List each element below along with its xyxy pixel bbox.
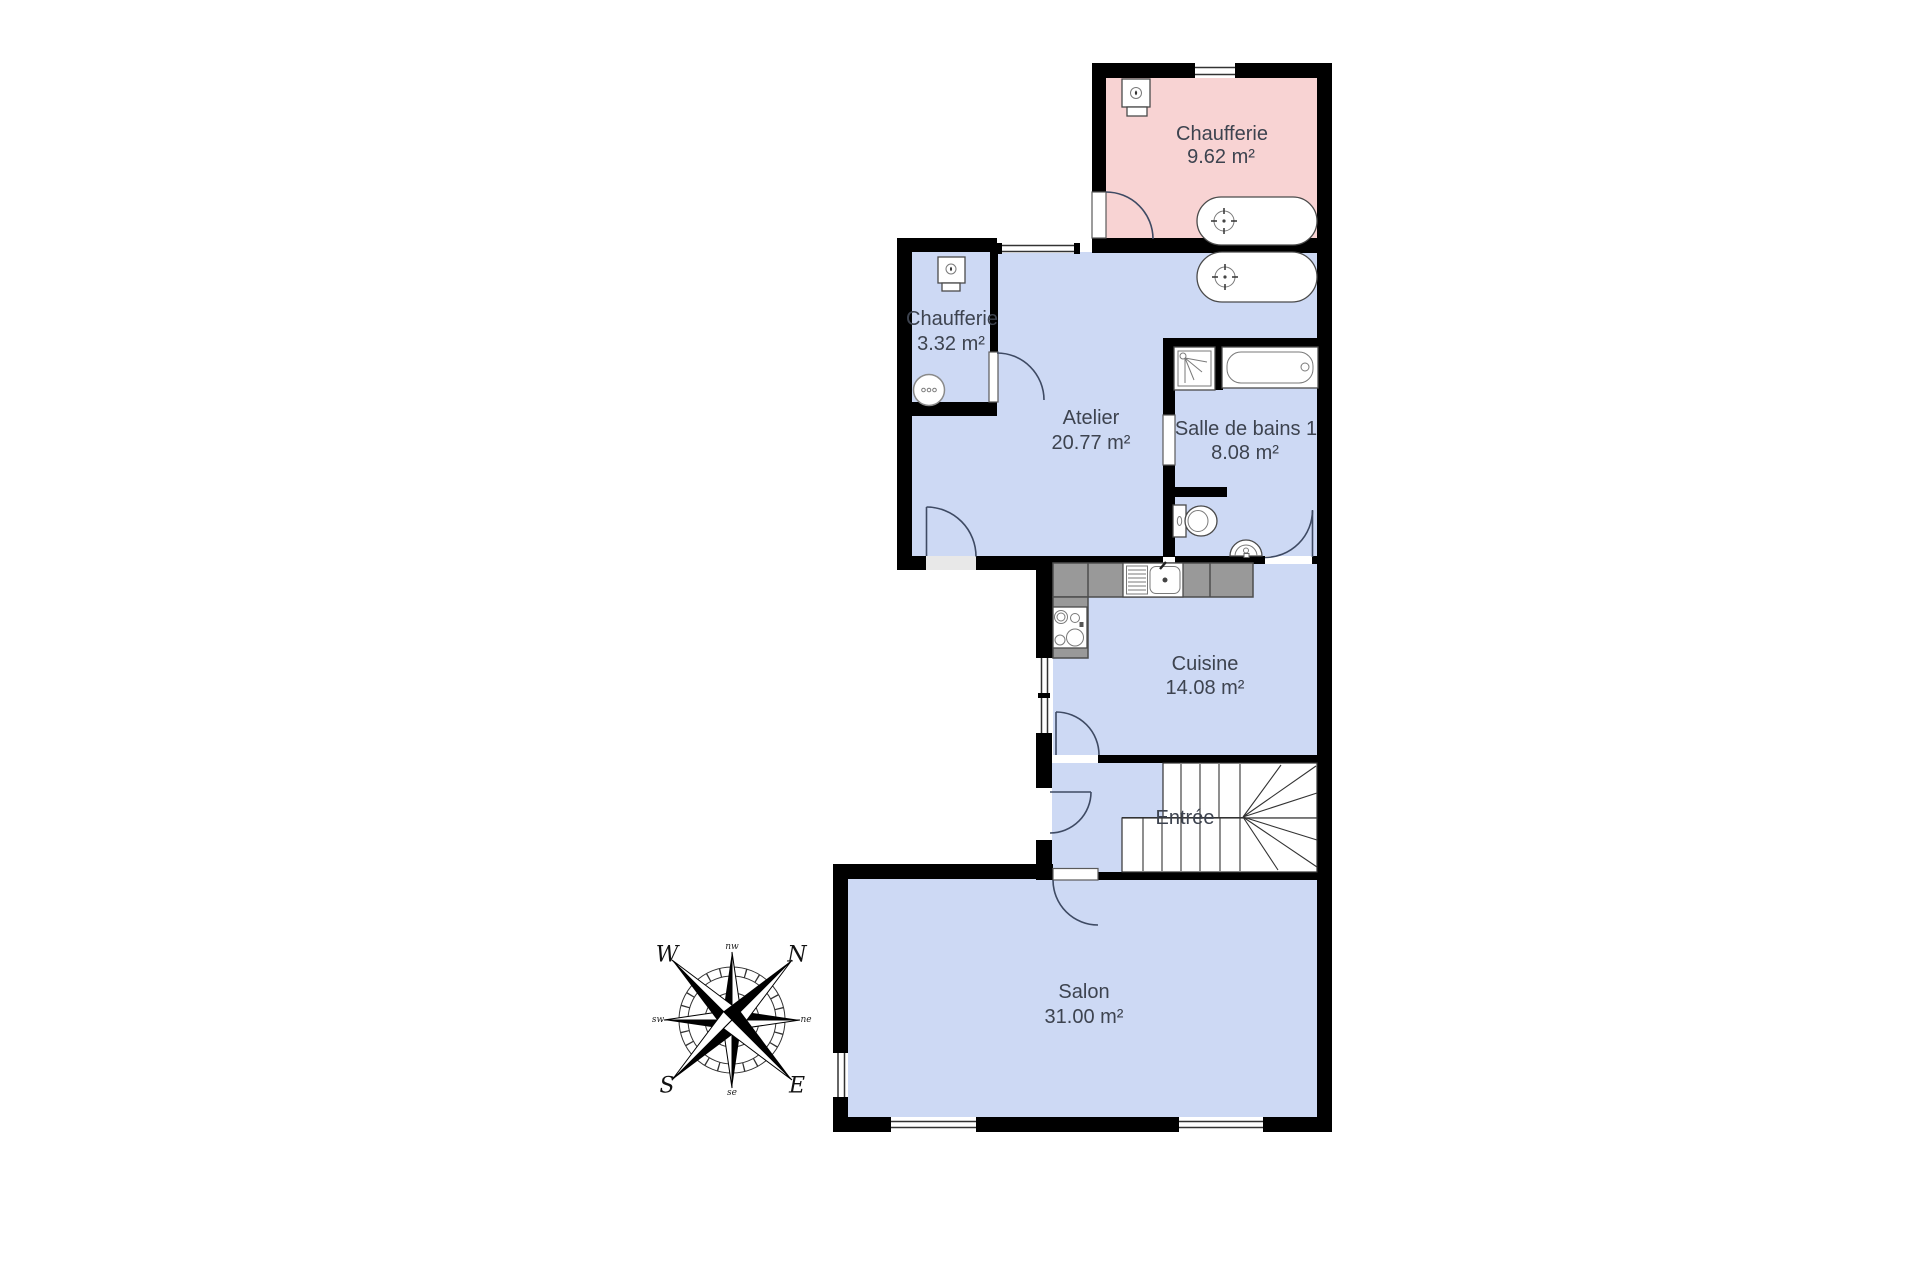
room-area-salon: 31.00 m² — [1045, 1006, 1124, 1028]
window-salon-left — [833, 1053, 848, 1097]
room-label-salle-de-bains: Salle de bains 1 — [1175, 418, 1317, 440]
room-label-salon: Salon — [1058, 981, 1109, 1003]
room-area-chaufferie-1: 9.62 m² — [1187, 146, 1255, 168]
water-heater-2 — [1197, 252, 1317, 302]
room-area-salle-de-bains: 8.08 m² — [1211, 442, 1279, 464]
room-label-entree: Entrée — [1156, 807, 1215, 829]
room-label-atelier: Atelier — [1063, 407, 1120, 429]
washing-machine-icon — [914, 375, 945, 406]
room-label-chaufferie-2: Chaufferie — [906, 308, 998, 330]
room-area-atelier: 20.77 m² — [1052, 432, 1131, 454]
floor-plan: W N S E nw ne sw se Chaufferie 9.62 m² C… — [0, 0, 1920, 1280]
room-label-chaufferie-1: Chaufferie — [1176, 123, 1268, 145]
bathtub — [1222, 347, 1318, 388]
compass-label-south: S — [659, 1074, 674, 1099]
window-salon-bottom-2 — [1175, 1117, 1267, 1132]
window-atelier-top — [997, 238, 1080, 254]
compass-label-se: se — [727, 1088, 737, 1098]
compass-label-nw: nw — [725, 942, 739, 952]
kitchen-sink — [1123, 562, 1183, 597]
window-cuisine-left — [1036, 658, 1052, 733]
room-area-chaufferie-2: 3.32 m² — [917, 333, 985, 355]
shower — [1174, 347, 1215, 390]
window-chaufferie-top — [1192, 63, 1238, 78]
floor-plan-page: W N S E nw ne sw se Chaufferie 9.62 m² C… — [0, 0, 1920, 1280]
door-salle-de-bains-sliding — [1163, 415, 1175, 465]
stove — [1053, 607, 1087, 648]
compass-rose: W N S E nw ne sw se — [652, 942, 812, 1099]
compass-label-sw: sw — [652, 1015, 665, 1025]
compass-label-north: N — [786, 943, 807, 968]
toilet — [1173, 505, 1217, 537]
compass-label-ne: ne — [800, 1015, 811, 1025]
room-area-cuisine: 14.08 m² — [1166, 677, 1245, 699]
compass-label-west: W — [656, 943, 681, 968]
water-heater-1 — [1197, 197, 1317, 245]
window-salon-bottom-1 — [887, 1117, 980, 1132]
room-label-cuisine: Cuisine — [1172, 653, 1239, 675]
compass-label-east: E — [788, 1074, 805, 1099]
